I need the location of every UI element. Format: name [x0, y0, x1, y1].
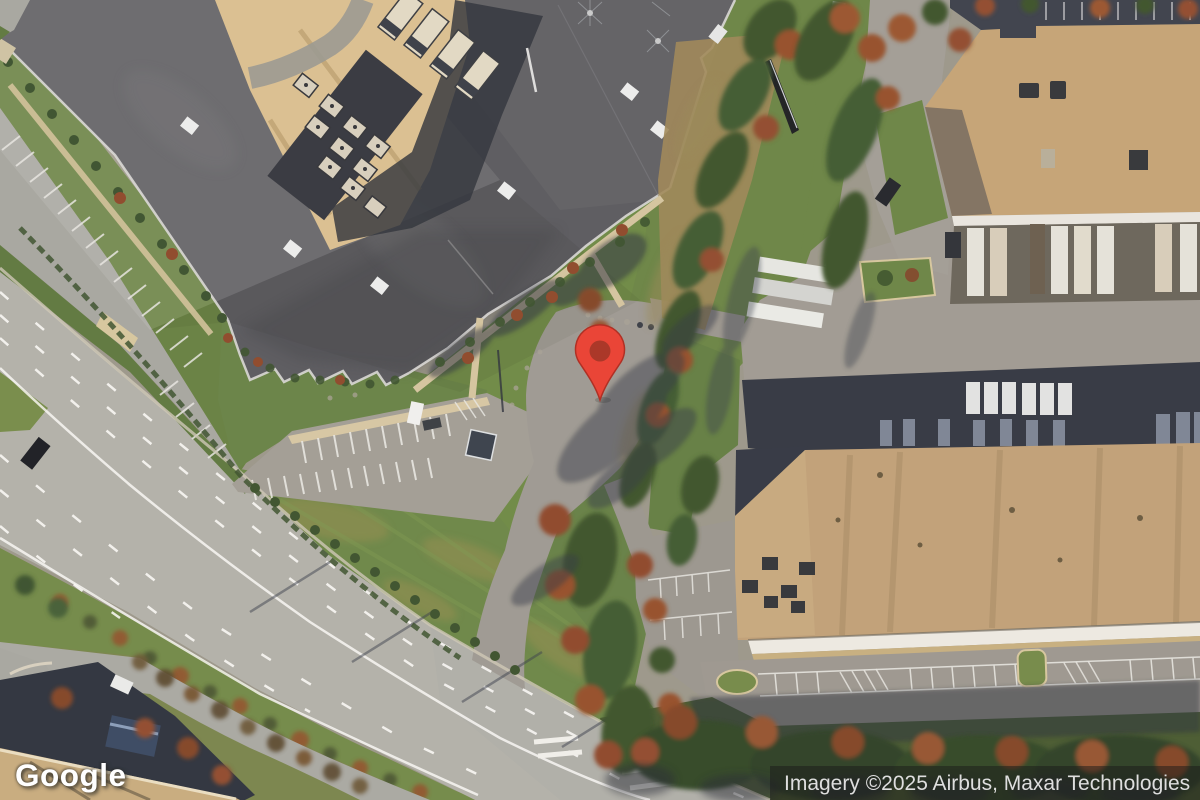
svg-text:Google: Google	[15, 757, 127, 793]
svg-text:Imagery ©2025 Airbus, Maxar Te: Imagery ©2025 Airbus, Maxar Technologies	[784, 772, 1190, 795]
